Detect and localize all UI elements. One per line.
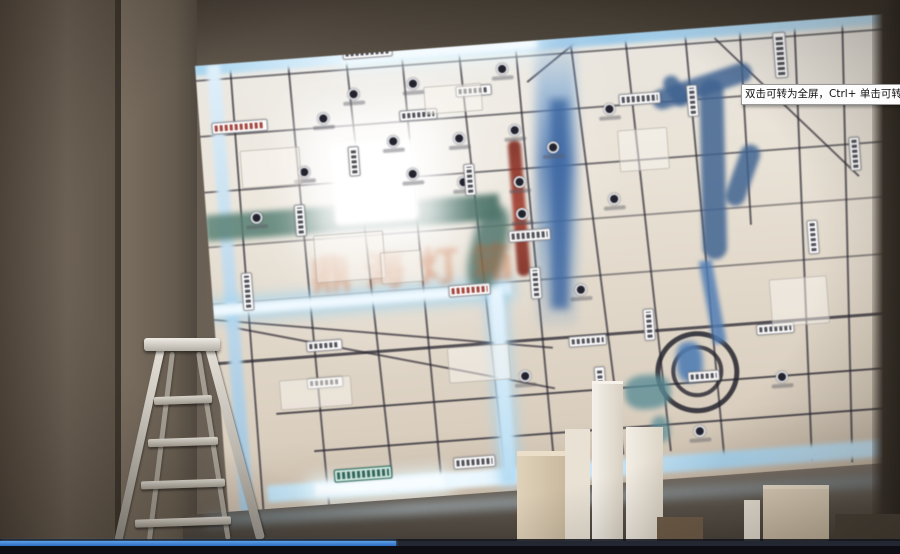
step-ladder [108,338,263,543]
player-bar-bottom [0,546,900,554]
map-poi-marker-icon [519,370,532,383]
fullscreen-tooltip: 双击可转为全屏，Ctrl+ 单击可转为 [741,84,900,105]
map-label-pill [568,334,607,348]
map-label-pill-vertical [806,220,820,255]
road-line-horizontal [276,365,900,415]
map-poi-marker-icon [608,193,621,206]
map-label-pill [306,339,343,353]
map-label-pill [453,455,496,470]
map-label-pill-vertical [347,146,360,177]
map-poi-marker-icon [453,132,466,145]
map-building-block [279,375,353,410]
ladder-top-cap [144,338,220,351]
map-poi-marker-icon [407,77,420,90]
map-building-block [769,275,830,327]
map-label-pill-vertical [772,32,788,79]
video-frame[interactable]: 鼎海灯箱 双击可转为全屏，Ctrl+ 单击可转 [0,0,900,554]
map-building-block [313,230,386,283]
map-poi-marker-icon [693,425,706,438]
map-label-pill-vertical [463,163,476,196]
map-label-pill-vertical [294,204,307,237]
map-poi-marker-icon [347,88,360,101]
ladder-step [148,437,218,447]
video-player-bar [0,539,900,554]
map-label-pill-vertical [642,308,655,341]
map-poi-marker-icon [516,207,529,220]
map-poi-marker-icon [574,283,587,296]
map-vertical-glow-strip [488,287,517,483]
foreground-column [565,429,590,554]
map-poi-marker-icon [496,63,509,76]
map-building-block [239,146,302,188]
ladder-step [141,479,225,490]
map-poi-marker-icon [317,112,330,125]
map-poi-marker-icon [513,176,526,189]
map-building-block [380,250,424,285]
foreground-column [592,381,623,554]
map-poi-marker-icon [776,370,789,383]
map-poi-marker-icon [603,103,616,116]
lake-arm [699,79,727,259]
map-building-block [423,83,483,115]
map-label-pill-vertical [686,84,699,117]
map-poi-marker-icon [406,168,419,181]
map-label-pill-vertical [529,267,542,300]
fullscreen-tooltip-text: 双击可转为全屏，Ctrl+ 单击可转为 [745,88,900,100]
room-wall-left [0,0,122,554]
map-label-pill-vertical [241,272,255,311]
map-poi-marker-icon [508,124,521,137]
map-building-block [447,343,512,384]
map-building-block [617,127,670,173]
